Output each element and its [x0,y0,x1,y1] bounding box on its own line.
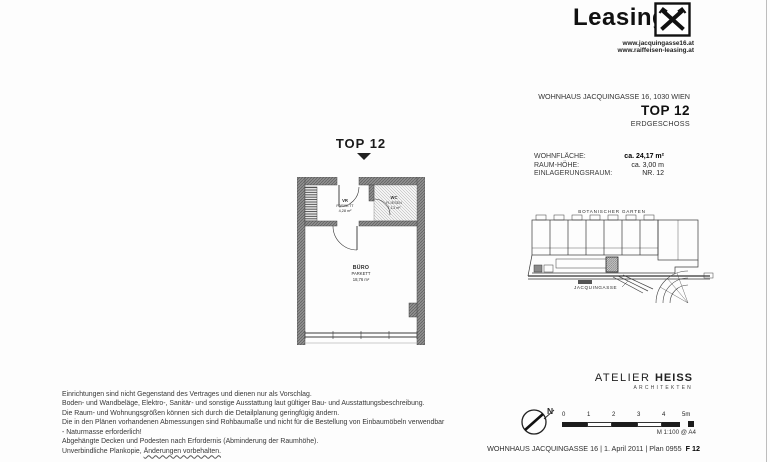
architect-name-regular: ATELIER [595,372,655,384]
scale-tick: 0 [562,412,565,418]
raiffeisen-gable-cross-icon [654,2,691,42]
detail-row: EINLAGERUNGSRAUM: NR. 12 [534,170,664,177]
unit-title: TOP 12 [538,103,690,118]
scan-edge-line [766,0,767,462]
scale-bar: 0 1 2 3 4 5m M 1:100 @ A4 [560,412,700,442]
architect-signature: ATELIER HEISS ARCHITEKTEN [595,372,693,391]
room-area-wc: 1,13 m² [388,206,402,210]
scale-segment [612,422,637,427]
details-panel: WOHNFLÄCHE: ca. 24,17 m² RAUM-HÖHE: ca. … [534,153,664,179]
street-marker [578,280,592,284]
note-line: Die in den Plänen vorhandenen Abmessunge… [62,418,444,427]
buero-door [333,226,357,250]
scale-tick: 4 [662,412,665,418]
site-plan: BOTANISCHER GARTEN [520,203,765,308]
detail-row: WOHNFLÄCHE: ca. 24,17 m² [534,153,664,160]
scale-segment [587,422,612,427]
north-label: N [547,406,553,416]
room-name-vr: VR [342,198,348,203]
room-finish-buero: PARKETT [351,271,370,276]
detail-label: EINLAGERUNGSRAUM: [534,170,612,177]
scale-text: M 1:100 @ A4 [657,429,696,436]
note-line: Einrichtungen sind nicht Gegenstand des … [62,390,444,399]
building-name: WOHNHAUS JACQUINGASSE 16, 1030 WIEN [538,92,690,101]
detail-label: RAUM-HÖHE: [534,162,579,169]
scale-segment [637,422,662,427]
detail-value: ca. 24,17 m² [624,153,664,160]
scanned-leasing-datasheet: Leasing www.jacquingasse16.at www.raiffe… [0,0,770,462]
architect-subtitle: ARCHITEKTEN [595,385,693,391]
window-band [305,331,417,343]
scale-tick: 3 [637,412,640,418]
footer-plan-code: F 12 [686,444,700,453]
down-pointer-icon [357,153,371,160]
scale-tick: 2 [612,412,615,418]
detail-label: WOHNFLÄCHE: [534,153,586,160]
room-finish-vr: PARKETT [336,204,354,208]
brand-urls: www.jacquingasse16.at www.raiffeisen-lea… [618,41,694,55]
url-line: www.raiffeisen-leasing.at [618,48,694,55]
note-final-part1: Unverbindliche Plankopie, [62,448,144,455]
note-line: - Naturmasse erforderlich! [62,428,444,437]
footer-text: WOHNHAUS JACQUINGASSE 16 | 1. April 2011… [487,444,682,453]
floorplan-title: TOP 12 [297,136,425,151]
room-area-buero: 18,76 m² [353,277,370,282]
shaft-element [305,187,317,221]
note-line: Boden- und Wandbeläge, Elektro-, Sanitär… [62,399,444,408]
siteplan-garden-label: BOTANISCHER GARTEN [578,209,646,214]
detail-row: RAUM-HÖHE: ca. 3,00 m [534,162,664,169]
room-finish-wc: FLIESEN [386,201,402,205]
driveway-lines [613,275,653,293]
detail-value: ca. 3,00 m [631,162,664,169]
siteplan-street-label: JACQUINGASSE [574,285,617,290]
floor-label: ERDGESCHOSS [538,119,690,128]
detail-value: NR. 12 [642,170,664,177]
scale-tick: 1 [587,412,590,418]
floor-plan: VR PARKETT 4,28 m² WC FLIESEN 1,13 m² BÜ… [297,177,425,350]
scale-segment [662,422,680,427]
scale-segment [562,422,587,427]
scale-end-square [688,421,694,427]
note-line: Die Raum- und Wohnungsgrößen können sich… [62,409,444,418]
architect-name-bold: HEISS [655,372,693,384]
property-header: WOHNHAUS JACQUINGASSE 16, 1030 WIEN TOP … [538,92,690,128]
room-name-buero: BÜRO [353,264,369,271]
room-area-vr: 4,28 m² [339,209,353,213]
room-name-wc: WC [391,195,398,200]
footer-plan-info: WOHNHAUS JACQUINGASSE 16 | 1. April 2011… [380,444,700,453]
siteplan-highlight-unit [606,257,618,272]
note-final-part2: Änderungen vorbehalten. [144,448,221,455]
scale-tick: 5m [682,412,690,418]
